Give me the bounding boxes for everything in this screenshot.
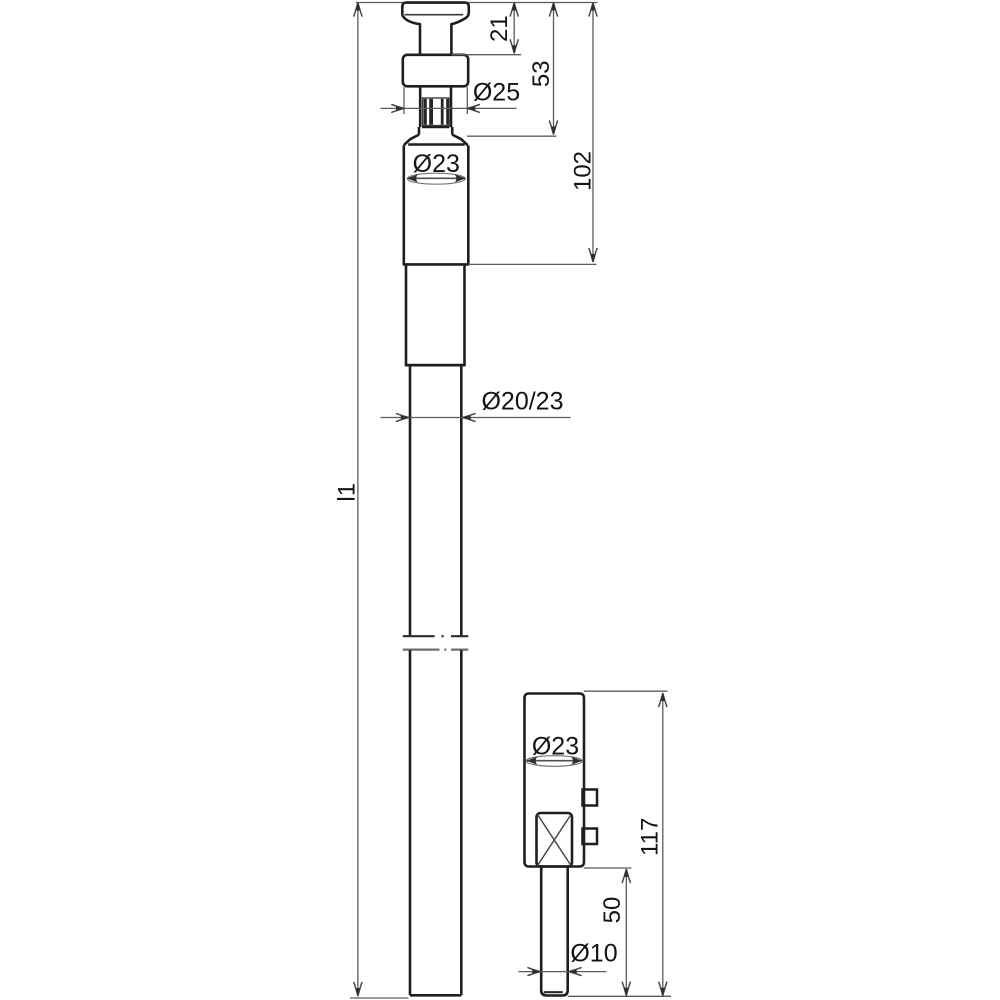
svg-text:l1: l1 bbox=[334, 483, 361, 502]
svg-text:Ø10: Ø10 bbox=[570, 939, 617, 967]
svg-text:21: 21 bbox=[486, 15, 513, 42]
svg-text:117: 117 bbox=[637, 818, 664, 856]
svg-text:Ø20/23: Ø20/23 bbox=[481, 387, 563, 415]
svg-text:50: 50 bbox=[599, 897, 626, 924]
svg-text:102: 102 bbox=[570, 151, 597, 191]
svg-text:Ø25: Ø25 bbox=[473, 78, 520, 106]
svg-text:53: 53 bbox=[528, 60, 555, 87]
